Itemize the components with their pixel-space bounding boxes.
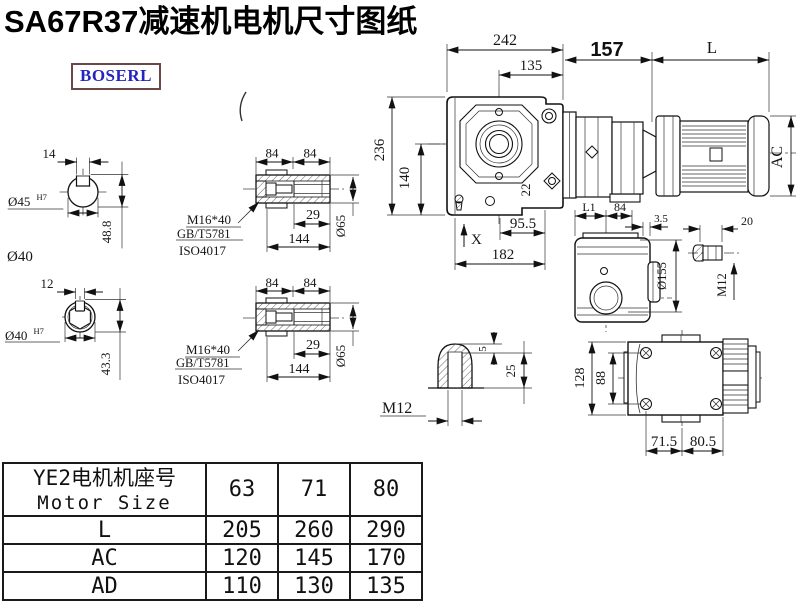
dim-height-bottom: 43.3 (98, 353, 113, 376)
brand-logo-text: BOSERL (80, 66, 152, 85)
dim-805: 80.5 (690, 434, 716, 450)
value-AD-71: 130 (278, 572, 350, 600)
view-hollow-shaft-top: 84 84 29 144 Ø65 M16*40 GB/T5781 ISO4017 (176, 146, 359, 259)
dim-key-width-top: 14 (43, 146, 57, 161)
dim-84-side: 84 (614, 200, 626, 214)
header-cn: YE2电机机座号 (4, 465, 205, 491)
page-title: SA67R37减速机电机尺寸图纸 (4, 0, 417, 41)
dim-len-b-top: 84 (304, 146, 318, 161)
view-hollow-shaft-bottom: 84 84 29 144 Ø65 M16*40 GB/T5781 ISO4017 (175, 275, 359, 387)
row-label-AD: AD (3, 572, 206, 600)
dim-m12-detail: M12 (382, 400, 412, 417)
dim-dia155: Ø155 (655, 262, 669, 290)
value-L-71: 260 (278, 516, 350, 544)
table-header-cell: YE2电机机座号 Motor Size (3, 463, 206, 516)
col-size-71: 71 (278, 463, 350, 516)
bolt-spec-bottom: M16*40 (186, 342, 230, 357)
dim-foot-len: 182 (492, 247, 515, 263)
table-row-L: L 205 260 290 (3, 516, 422, 544)
ink-artifact (240, 92, 246, 121)
dim-25: 25 (503, 365, 518, 378)
header-en: Motor Size (4, 491, 205, 515)
dim-motor-dia: AC (769, 146, 786, 168)
dim-len-a-bottom: 84 (266, 275, 280, 290)
table-row-AC: AC 120 145 170 (3, 544, 422, 572)
dim-axis-height: 140 (397, 167, 413, 190)
dim-bore-tol-bottom: H7 (34, 326, 44, 336)
dim-bore-top: Ø45 (8, 194, 30, 209)
dim-l1: L1 (582, 200, 595, 214)
mark-x-label: X (471, 232, 482, 248)
value-AC-63: 120 (206, 544, 278, 572)
std-iso-bottom: ISO4017 (178, 372, 225, 387)
dim-bore-tol-top: H7 (37, 192, 47, 202)
value-AD-80: 135 (350, 572, 422, 600)
row-label-AC: AC (3, 544, 206, 572)
col-size-80: 80 (350, 463, 422, 516)
std-gb-bottom: GB/T5781 (176, 356, 229, 370)
dim-key-width-bottom: 12 (41, 276, 54, 291)
dim-35: 3.5 (654, 213, 668, 225)
col-size-63: 63 (206, 463, 278, 516)
dim-m12-side: M12 (715, 273, 729, 297)
dim-total-len-top: 144 (289, 232, 310, 247)
dim-center-offset: 135 (520, 58, 543, 74)
dim-width: 242 (493, 32, 517, 49)
view-bottom-flange: 128 88 71.5 80.5 (573, 330, 762, 456)
dim-motor-len: L (707, 38, 717, 57)
dim-flange-thk: 22 (518, 184, 533, 197)
dim-bore-bottom: Ø40 (5, 328, 27, 343)
value-AC-71: 145 (278, 544, 350, 572)
value-L-80: 290 (350, 516, 422, 544)
dim-height-top: 48.8 (99, 221, 114, 244)
std-gb-top: GB/T5781 (177, 227, 230, 241)
std-iso-top: ISO4017 (179, 243, 226, 258)
table-row-AD: AD 110 130 135 (3, 572, 422, 600)
dim-20: 20 (741, 214, 753, 228)
dim-total-len-bottom: 144 (289, 362, 310, 377)
dim-adapter-len: 157 (590, 39, 623, 61)
dim-dia-bottom: Ø65 (333, 345, 348, 367)
value-AD-63: 110 (206, 572, 278, 600)
dim-foot-offset: 95.5 (510, 216, 536, 232)
bolt-spec-top: M16*40 (187, 212, 231, 227)
label-outer-dia: Ø40 (7, 249, 33, 265)
view-side-gearbox: L1 84 3.5 Ø155 20 (575, 200, 753, 332)
value-AC-80: 170 (350, 544, 422, 572)
view-shaft-end-top: 14 48.8 Ø45 H7 Ø40 (7, 146, 128, 265)
dim-715: 71.5 (651, 434, 677, 450)
dim-bore-depth-bottom: 29 (306, 338, 320, 353)
motor-size-table: YE2电机机座号 Motor Size 63 71 80 L 205 260 2… (2, 462, 423, 601)
dim-len-a-top: 84 (266, 146, 280, 161)
dim-5: 5 (477, 346, 489, 352)
row-label-L: L (3, 516, 206, 544)
view-key-detail: 5 25 M12 (380, 332, 532, 426)
drawing-sheet: SA67R37减速机电机尺寸图纸 BOSERL (0, 0, 800, 609)
table-header-row: YE2电机机座号 Motor Size 63 71 80 (3, 463, 422, 516)
dim-dia-top: Ø65 (333, 215, 348, 237)
brand-logo: BOSERL (71, 63, 161, 90)
dim-88: 88 (594, 371, 609, 385)
dim-len-b-bottom: 84 (304, 275, 318, 290)
dim-height: 236 (372, 138, 388, 161)
view-shaft-end-bottom: 12 43.3 Ø40 H7 (5, 276, 126, 380)
dim-128: 128 (573, 368, 588, 389)
value-L-63: 205 (206, 516, 278, 544)
dim-bore-depth-top: 29 (306, 208, 320, 223)
